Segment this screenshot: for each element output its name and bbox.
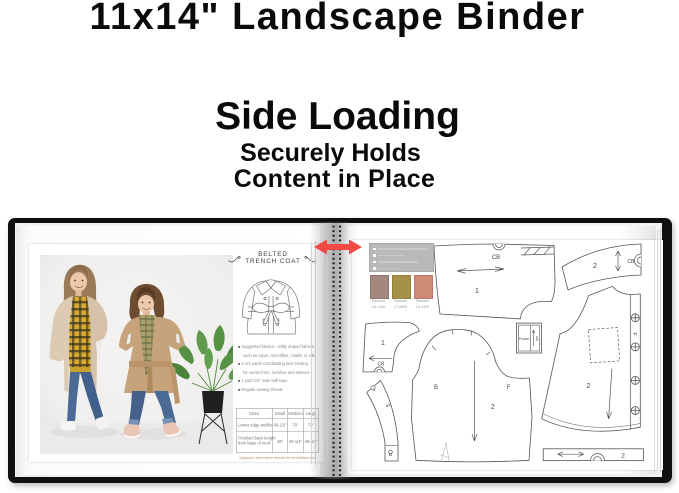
svg-text:B: B bbox=[434, 385, 438, 391]
svg-text:70": 70" bbox=[292, 423, 299, 428]
svg-text:68-1/2": 68-1/2" bbox=[273, 423, 287, 428]
svg-text:1: 1 bbox=[381, 340, 385, 347]
svg-text:Sizes: Sizes bbox=[249, 411, 259, 416]
svg-text:5: 5 bbox=[536, 337, 539, 343]
svg-text:Medium: Medium bbox=[288, 411, 303, 416]
svg-text:from base of neck: from base of neck bbox=[238, 441, 271, 446]
svg-text:Lower edge widths: Lower edge widths bbox=[238, 423, 272, 428]
svg-text:Pocket: Pocket bbox=[519, 337, 529, 341]
svg-text:2: 2 bbox=[491, 404, 495, 411]
svg-text:2: 2 bbox=[593, 263, 597, 270]
svg-text:1: 1 bbox=[475, 288, 479, 295]
svg-text:2: 2 bbox=[621, 453, 625, 460]
svg-text:49": 49" bbox=[277, 439, 284, 444]
svg-text:CB: CB bbox=[378, 362, 386, 368]
svg-text:F: F bbox=[507, 385, 511, 391]
svg-text:49-1/4": 49-1/4" bbox=[289, 439, 303, 444]
svg-text:Small: Small bbox=[275, 411, 285, 416]
svg-text:CB: CB bbox=[628, 259, 636, 265]
svg-text:CB: CB bbox=[492, 255, 500, 261]
svg-text:2: 2 bbox=[587, 383, 591, 390]
